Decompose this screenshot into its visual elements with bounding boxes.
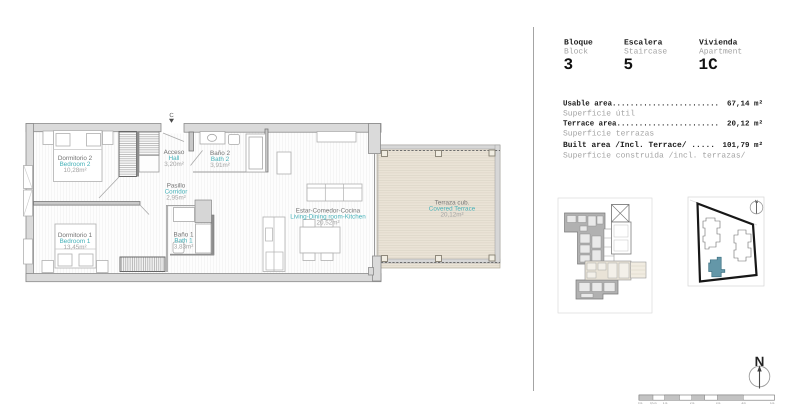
- svg-text:10,28m²: 10,28m²: [63, 167, 86, 174]
- svg-text:20,52m²: 20,52m²: [316, 220, 339, 227]
- svg-text:3,83m²: 3,83m²: [174, 244, 194, 251]
- svg-text:3,91m²: 3,91m²: [210, 162, 230, 169]
- svg-text:4 m: 4 m: [742, 402, 746, 405]
- svg-text:6 m: 6 m: [770, 402, 774, 405]
- svg-text:Bedroom 2: Bedroom 2: [60, 161, 91, 168]
- svg-text:Bedroom 1: Bedroom 1: [60, 238, 91, 245]
- svg-text:Superficie construida /incl. t: Superficie construida /incl. terrazas/: [563, 152, 746, 161]
- svg-text:Hall: Hall: [169, 155, 180, 162]
- svg-text:Living-Dining room-Kitchen: Living-Dining room-Kitchen: [290, 214, 366, 221]
- svg-text:Usable area...................: Usable area........................: [563, 100, 719, 109]
- svg-text:Vivienda: Vivienda: [699, 39, 738, 48]
- svg-text:Bloque: Bloque: [564, 39, 593, 48]
- svg-text:20,12m²: 20,12m²: [440, 212, 463, 219]
- svg-text:0,5 m: 0,5 m: [650, 402, 657, 405]
- svg-text:2 m: 2 m: [690, 402, 694, 405]
- svg-text:0 m: 0 m: [638, 402, 642, 405]
- svg-text:Bath 1: Bath 1: [174, 238, 193, 245]
- svg-text:1C: 1C: [699, 56, 719, 74]
- svg-text:20,12 m²: 20,12 m²: [727, 120, 763, 129]
- svg-text:3 m: 3 m: [716, 402, 720, 405]
- svg-text:Bath 2: Bath 2: [211, 156, 230, 163]
- svg-text:3,20m²: 3,20m²: [164, 161, 184, 168]
- svg-text:2,95m²: 2,95m²: [166, 195, 186, 202]
- svg-text:1 m: 1 m: [663, 402, 667, 405]
- svg-text:67,14 m²: 67,14 m²: [727, 100, 763, 109]
- svg-text:Covered Terrace: Covered Terrace: [429, 206, 476, 213]
- svg-text:13,45m²: 13,45m²: [63, 244, 86, 251]
- svg-text:3: 3: [564, 56, 574, 74]
- svg-text:Superficie terrazas: Superficie terrazas: [563, 130, 654, 139]
- svg-text:C: C: [169, 112, 174, 119]
- svg-text:Corridor: Corridor: [165, 189, 188, 196]
- svg-text:Superficie útil: Superficie útil: [563, 110, 635, 119]
- svg-text:5: 5: [624, 56, 634, 74]
- svg-text:Built area /Incl. Terrace/ ...: Built area /Incl. Terrace/ .....: [563, 141, 715, 150]
- svg-text:Escalera: Escalera: [624, 39, 663, 48]
- svg-text:Terrace area..................: Terrace area.......................: [563, 120, 719, 129]
- svg-text:101,79 m²: 101,79 m²: [722, 141, 763, 150]
